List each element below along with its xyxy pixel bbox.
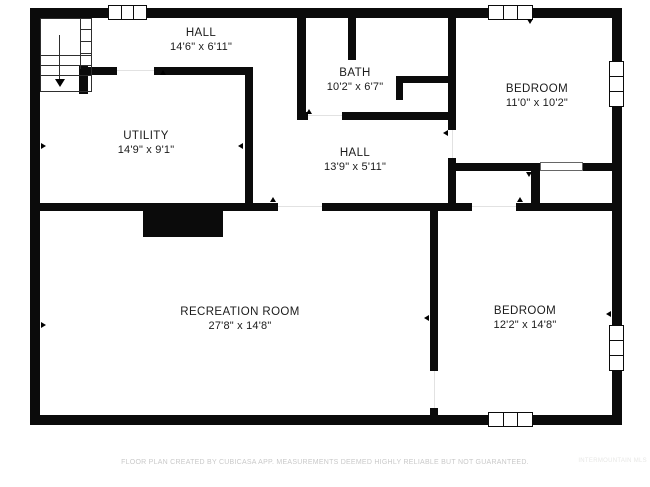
door-opening xyxy=(472,206,516,207)
wall-bath-bottom-b xyxy=(342,112,456,120)
wall-utility-right xyxy=(245,67,253,211)
room-name: HALL xyxy=(324,146,386,160)
disclaimer-text: FLOOR PLAN CREATED BY CUBICASA APP. MEAS… xyxy=(0,459,650,466)
wall-bath-left xyxy=(297,8,306,120)
wall-bedroom2-left-a xyxy=(430,203,438,371)
room-name: BEDROOM xyxy=(494,304,557,318)
room-label-hall-upper: HALL 14'6" x 6'11" xyxy=(170,26,232,54)
stair-step xyxy=(80,53,92,54)
room-dimensions: 12'2" x 14'8" xyxy=(494,318,557,332)
window-symbol xyxy=(488,412,533,427)
watermark: INTERMOUNTAIN MLS xyxy=(578,458,647,464)
room-label-recreation-room: RECREATION ROOM 27'8" x 14'8" xyxy=(180,305,300,333)
wall-outer-left xyxy=(30,8,40,425)
stairs-arrow-shaft xyxy=(59,35,60,81)
cased-opening-symbol xyxy=(540,162,583,171)
door-opening xyxy=(278,206,322,207)
room-label-bedroom-lower: BEDROOM 12'2" x 14'8" xyxy=(494,304,557,332)
window-symbol xyxy=(488,5,533,20)
room-label-bedroom-upper: BEDROOM 11'0" x 10'2" xyxy=(506,82,568,110)
door-marker xyxy=(606,311,611,317)
room-name: BATH xyxy=(327,66,384,80)
room-dimensions: 11'0" x 10'2" xyxy=(506,96,568,110)
wall-closet-divider xyxy=(531,163,540,211)
window-symbol xyxy=(609,325,624,371)
wall-closet-top-left xyxy=(448,163,531,171)
door-marker xyxy=(160,70,166,75)
chimney xyxy=(143,206,223,237)
door-marker xyxy=(526,172,532,177)
stair-step xyxy=(41,75,92,76)
door-marker xyxy=(238,143,243,149)
wall-bedroom2-left-b xyxy=(430,408,438,425)
wall-bath-closet-h xyxy=(396,76,456,83)
door-marker xyxy=(443,130,448,136)
room-label-hall-lower: HALL 13'9" x 5'11" xyxy=(324,146,386,174)
stairs-down-arrow-icon xyxy=(55,79,65,87)
staircase xyxy=(40,18,92,92)
room-label-utility: UTILITY 14'9" x 9'1" xyxy=(118,129,175,157)
floor-plan: HALL 14'6" x 6'11" BATH 10'2" x 6'7" BED… xyxy=(0,0,650,487)
stair-step xyxy=(80,29,92,30)
door-opening xyxy=(117,70,154,71)
door-marker xyxy=(270,197,276,202)
wall-bedroom1-left-a xyxy=(448,8,456,130)
room-dimensions: 10'2" x 6'7" xyxy=(327,80,384,94)
room-name: UTILITY xyxy=(118,129,175,143)
room-dimensions: 14'6" x 6'11" xyxy=(170,40,232,54)
wall-outer-bottom xyxy=(30,415,622,425)
room-name: RECREATION ROOM xyxy=(180,305,300,319)
door-marker xyxy=(424,315,429,321)
stair-divider xyxy=(80,19,81,69)
door-opening xyxy=(452,130,453,158)
stair-step xyxy=(41,55,92,56)
window-symbol xyxy=(108,5,147,20)
room-name: BEDROOM xyxy=(506,82,568,96)
wall-utility-top-b xyxy=(154,67,253,75)
room-dimensions: 13'9" x 5'11" xyxy=(324,160,386,174)
room-label-bath: BATH 10'2" x 6'7" xyxy=(327,66,384,94)
door-marker xyxy=(517,197,523,202)
stair-step xyxy=(41,65,92,66)
door-marker xyxy=(41,143,46,149)
window-symbol xyxy=(609,61,624,107)
door-marker xyxy=(41,322,46,328)
room-dimensions: 27'8" x 14'8" xyxy=(180,319,300,333)
wall-bath-stub xyxy=(348,8,356,60)
wall-bath-closet-v xyxy=(396,83,403,100)
stair-step xyxy=(80,41,92,42)
door-opening xyxy=(308,115,342,116)
door-marker xyxy=(306,109,312,114)
door-opening xyxy=(434,371,435,408)
room-dimensions: 14'9" x 9'1" xyxy=(118,143,175,157)
wall-closet-top-right xyxy=(582,163,622,171)
room-name: HALL xyxy=(170,26,232,40)
door-marker xyxy=(527,19,533,24)
